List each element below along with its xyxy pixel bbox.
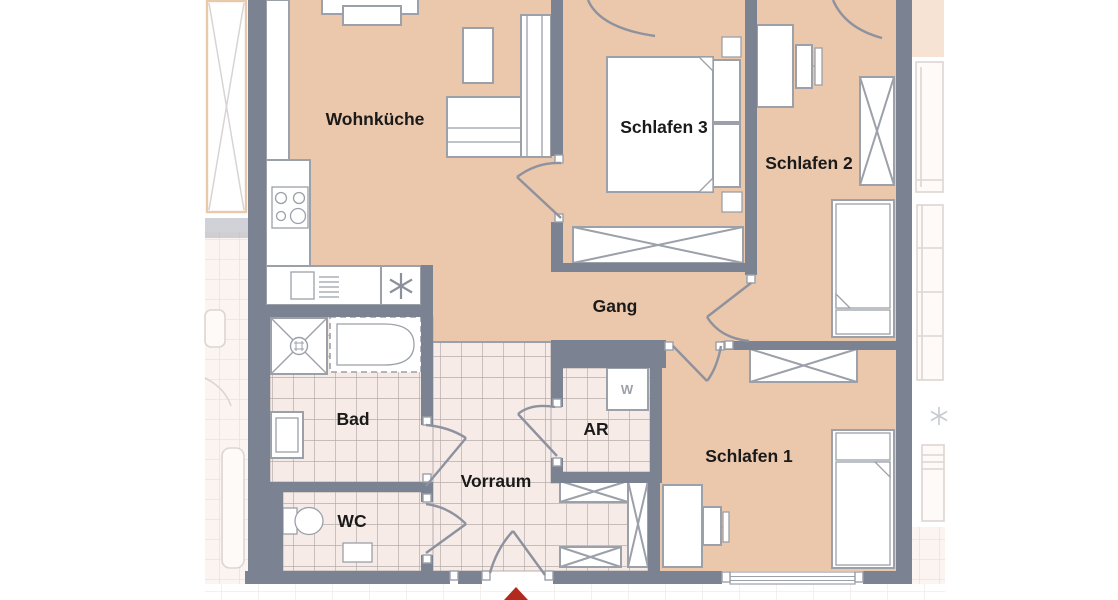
- armchair: [463, 28, 493, 83]
- window-jamb: [722, 572, 730, 582]
- wall-vorraum-schlafen1: [648, 483, 660, 571]
- neighbour-left-faded: [205, 1, 248, 584]
- wall-bad-wc: [270, 482, 433, 492]
- bathtub: [330, 317, 421, 372]
- faded-wall-stub: [205, 218, 248, 238]
- kitchen-counter-bottom: [266, 266, 381, 305]
- wardrobe: [560, 547, 621, 567]
- neighbour-floor-tint: [912, 0, 944, 57]
- wall-wohnkueche-schlafen3-top: [551, 0, 563, 156]
- neighbour-fixture: [205, 310, 225, 347]
- room-label-wohnkueche: Wohnküche: [326, 109, 425, 129]
- wall-left-bad: [248, 305, 270, 492]
- wall-bottom-right: [863, 571, 912, 584]
- door-jamb: [747, 275, 755, 283]
- pillow: [836, 310, 890, 334]
- floorplan-svg: W: [0, 0, 1118, 600]
- outside-paving: [205, 584, 945, 600]
- room-label-schlafen2: Schlafen 2: [765, 153, 853, 173]
- nightstand: [722, 192, 742, 212]
- shower: [271, 318, 327, 374]
- neighbour-asterisk-icon: [931, 407, 947, 425]
- wall-schlafen3-gang: [551, 263, 757, 272]
- sofa-back: [521, 15, 551, 157]
- wall-vorraum-ar-top: [551, 340, 563, 407]
- wall-ar-bottom: [551, 472, 662, 483]
- room-label-vorraum: Vorraum: [461, 471, 532, 491]
- mattress: [836, 204, 890, 308]
- neighbour-right-faded: [912, 0, 947, 600]
- nightstand: [722, 37, 741, 57]
- wardrobe: [628, 481, 648, 567]
- door-jamb: [725, 341, 733, 349]
- pillow: [713, 60, 740, 122]
- floorplan-canvas: W: [0, 0, 1118, 600]
- chair: [703, 507, 721, 545]
- wall-bottom-entry-left: [458, 571, 482, 584]
- washing-machine-label: W: [621, 382, 634, 397]
- wall-bottom-mid: [553, 571, 722, 584]
- toilet: [283, 508, 323, 535]
- wall-bad-right: [421, 265, 433, 425]
- door-jamb: [665, 342, 673, 350]
- wardrobe: [750, 349, 857, 382]
- door-jamb: [423, 417, 431, 425]
- neighbour-kitchen-unit: [922, 445, 944, 521]
- wall-ar-schlafen1: [650, 368, 662, 472]
- window-schlafen1: [730, 572, 855, 584]
- door-jamb: [423, 494, 431, 502]
- pillow: [836, 433, 890, 460]
- chair-back: [815, 48, 822, 85]
- desk: [663, 485, 702, 567]
- neighbour-bathtub: [222, 448, 244, 568]
- door-jamb: [423, 555, 431, 563]
- door-jamb: [450, 571, 458, 580]
- wardrobe: [573, 227, 743, 263]
- wall-bottom-left: [245, 571, 450, 584]
- sofa-seat: [447, 97, 521, 157]
- window-jamb: [855, 572, 863, 582]
- chair: [796, 45, 812, 88]
- room-label-gang: Gang: [593, 296, 638, 316]
- room-label-ar: AR: [583, 419, 609, 439]
- wardrobe: [860, 77, 894, 185]
- wall-kitchen-bad: [248, 305, 433, 317]
- drain-icon: [291, 338, 308, 355]
- room-label-bad: Bad: [336, 409, 369, 429]
- door-jamb: [553, 458, 561, 466]
- room-label-schlafen1: Schlafen 1: [705, 446, 793, 466]
- dining-chair: [343, 6, 401, 25]
- wardrobe: [560, 481, 628, 502]
- room-label-wc: WC: [337, 511, 367, 531]
- sink: [291, 272, 314, 299]
- hand-basin: [343, 543, 372, 562]
- door-jamb: [482, 571, 490, 580]
- kitchen-counter-tall: [266, 0, 289, 160]
- neighbour-frame: [916, 62, 943, 192]
- wall-left-wc: [248, 492, 283, 584]
- pillow: [713, 124, 740, 187]
- chair-back: [723, 512, 729, 542]
- mattress: [836, 462, 890, 565]
- wall-schlafen2-schlafen1: [721, 341, 896, 350]
- wall-right: [896, 0, 912, 584]
- washing-machine: W: [607, 368, 648, 410]
- wall-schlafen3-schlafen2: [745, 0, 757, 275]
- desk: [757, 25, 793, 107]
- room-label-schlafen3: Schlafen 3: [620, 117, 708, 137]
- door-jamb: [545, 571, 553, 580]
